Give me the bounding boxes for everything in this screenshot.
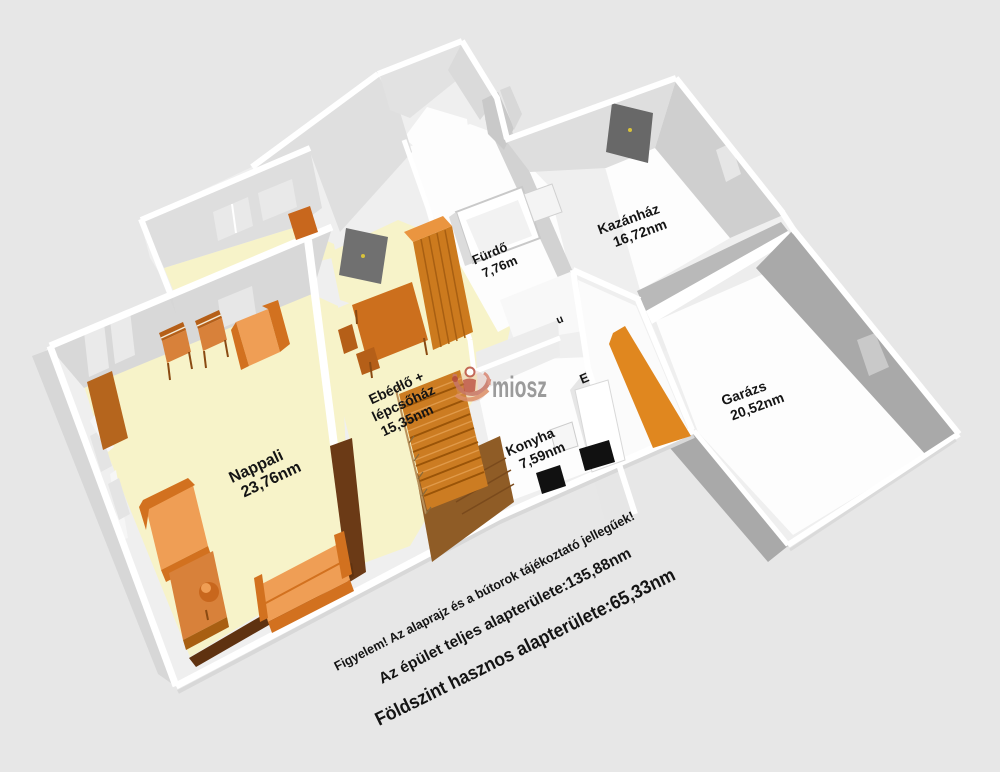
svg-text:miosz: miosz [492,371,547,404]
